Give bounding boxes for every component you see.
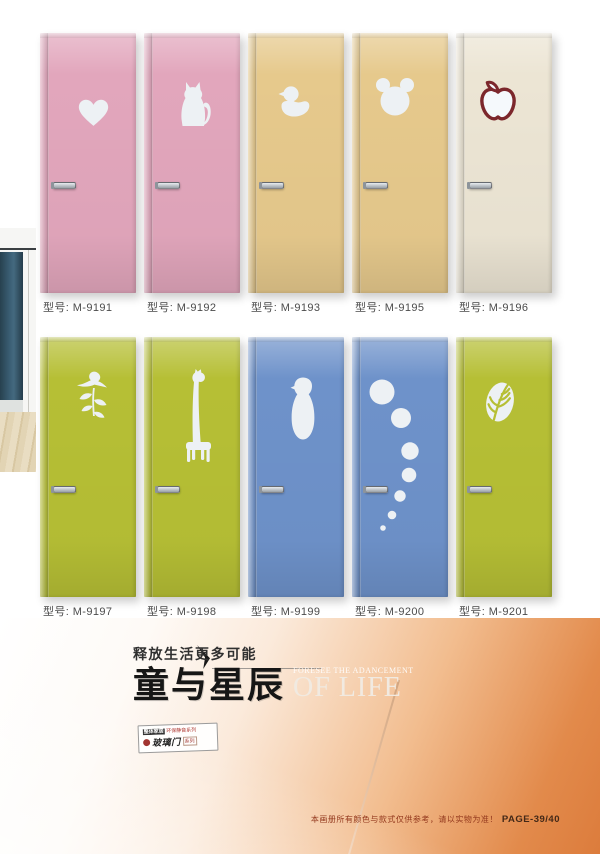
door-jamb	[248, 337, 255, 597]
footer-note: 本画册所有颜色与款式仅供参考，请以实物为准！PAGE-39/40	[311, 814, 560, 825]
door-handle	[365, 182, 388, 189]
door-m9200	[352, 337, 448, 597]
hero-text-block: 释放生活更多可能 童与星辰 FORESEE THE ADANCEMENT OF …	[133, 644, 414, 703]
door-handle	[261, 486, 284, 493]
door-m9196	[456, 33, 552, 293]
door-m9197	[40, 337, 136, 597]
catalog-page: 型号: M-9191 型号: M-9192	[0, 0, 600, 854]
model-label: 型号: M-9196	[459, 299, 528, 315]
model-label: 型号: M-9198	[147, 603, 216, 619]
door-handle	[53, 182, 76, 189]
door-card-m9196: 型号: M-9196	[456, 33, 552, 317]
series-logo-suffix: 系列	[182, 736, 196, 745]
hero-tagline: 释放生活更多可能	[133, 644, 414, 664]
bird-branch-cutout-icon	[73, 370, 113, 432]
door-jamb-gap	[255, 337, 257, 597]
door-card-m9193: 型号: M-9193	[248, 33, 344, 317]
door-top-edge	[248, 33, 344, 38]
apple-cutout-icon	[478, 78, 518, 124]
door-jamb-gap	[255, 33, 257, 293]
model-label: 型号: M-9199	[251, 603, 320, 619]
door-jamb-gap	[151, 337, 153, 597]
door-jamb-gap	[47, 337, 49, 597]
fold-crease	[340, 680, 399, 854]
showroom-photo-fragment	[0, 228, 36, 472]
door-jamb-gap	[151, 33, 153, 293]
door-card-m9195: 型号: M-9195	[352, 33, 448, 317]
model-label: 型号: M-9197	[43, 603, 112, 619]
door-card-m9191: 型号: M-9191	[40, 33, 136, 317]
door-jamb	[144, 33, 151, 293]
door-jamb-gap	[47, 33, 49, 293]
leaf-cutout-icon	[485, 381, 515, 423]
mickey-cutout-icon	[376, 77, 414, 117]
bubbles-cutout-icon	[352, 337, 448, 597]
door-card-m9192: 型号: M-9192	[144, 33, 240, 317]
photo-wall-edge	[28, 250, 29, 420]
model-label: 型号: M-9201	[459, 603, 528, 619]
hero-title-cn: 童与星辰	[133, 667, 285, 703]
door-top-edge	[248, 337, 344, 342]
door-top-edge	[456, 33, 552, 38]
door-m9201	[456, 337, 552, 597]
door-card-m9198: 型号: M-9198	[144, 337, 240, 621]
door-handle	[53, 486, 76, 493]
door-jamb	[456, 337, 463, 597]
door-m9198	[144, 337, 240, 597]
hero-section: 释放生活更多可能 童与星辰 FORESEE THE ADANCEMENT OF …	[0, 618, 600, 854]
door-jamb	[40, 33, 47, 293]
door-jamb-gap	[359, 33, 361, 293]
door-handle	[261, 182, 284, 189]
door-handle	[469, 182, 492, 189]
door-jamb	[40, 337, 47, 597]
series-logo-tagline-red: 环保静音系列	[166, 727, 196, 734]
series-logo-box: 整体家居 环保静音系列 玻璃门 系列	[138, 723, 219, 754]
door-card-m9200: 型号: M-9200	[352, 337, 448, 621]
door-handle	[365, 486, 388, 493]
door-jamb	[248, 33, 255, 293]
model-label: 型号: M-9193	[251, 299, 320, 315]
series-logo-tagline-dark: 整体家居	[143, 728, 165, 735]
door-top-edge	[352, 33, 448, 38]
model-label: 型号: M-9195	[355, 299, 424, 315]
door-jamb	[456, 33, 463, 293]
door-jamb	[144, 337, 151, 597]
door-m9195	[352, 33, 448, 293]
photo-door-panel	[0, 252, 23, 400]
door-card-m9199: 型号: M-9199	[248, 337, 344, 621]
door-top-edge	[144, 33, 240, 38]
door-m9199	[248, 337, 344, 597]
door-top-edge	[40, 33, 136, 38]
photo-baseboard	[0, 400, 23, 412]
door-m9192	[144, 33, 240, 293]
door-handle	[157, 182, 180, 189]
door-top-edge	[456, 337, 552, 342]
duck-cutout-icon	[278, 85, 310, 117]
giraffe-cutout-icon	[182, 367, 212, 465]
door-top-edge	[144, 337, 240, 342]
door-m9191	[40, 33, 136, 293]
door-top-edge	[40, 337, 136, 342]
door-card-m9201: 型号: M-9201	[456, 337, 552, 621]
door-card-m9197: 型号: M-9197	[40, 337, 136, 621]
door-jamb-gap	[463, 337, 465, 597]
hero-subtitle-large: OF LIFE	[293, 675, 414, 702]
door-jamb-gap	[463, 33, 465, 293]
page-number: PAGE-39/40	[502, 814, 560, 825]
cat-cutout-icon	[174, 78, 211, 130]
model-label: 型号: M-9192	[147, 299, 216, 315]
model-label: 型号: M-9191	[43, 299, 112, 315]
door-handle	[157, 486, 180, 493]
penguin-cutout-icon	[288, 375, 318, 443]
door-jamb	[352, 33, 359, 293]
disclaimer-text: 本画册所有颜色与款式仅供参考，请以实物为准！	[311, 815, 498, 824]
photo-wood-floor	[0, 412, 36, 472]
photo-frame-line	[0, 248, 36, 250]
heart-cutout-icon	[77, 96, 110, 130]
series-logo-dot-icon	[143, 739, 150, 746]
series-logo-name: 玻璃门	[152, 735, 181, 749]
door-handle	[469, 486, 492, 493]
model-label: 型号: M-9200	[355, 603, 424, 619]
door-m9193	[248, 33, 344, 293]
